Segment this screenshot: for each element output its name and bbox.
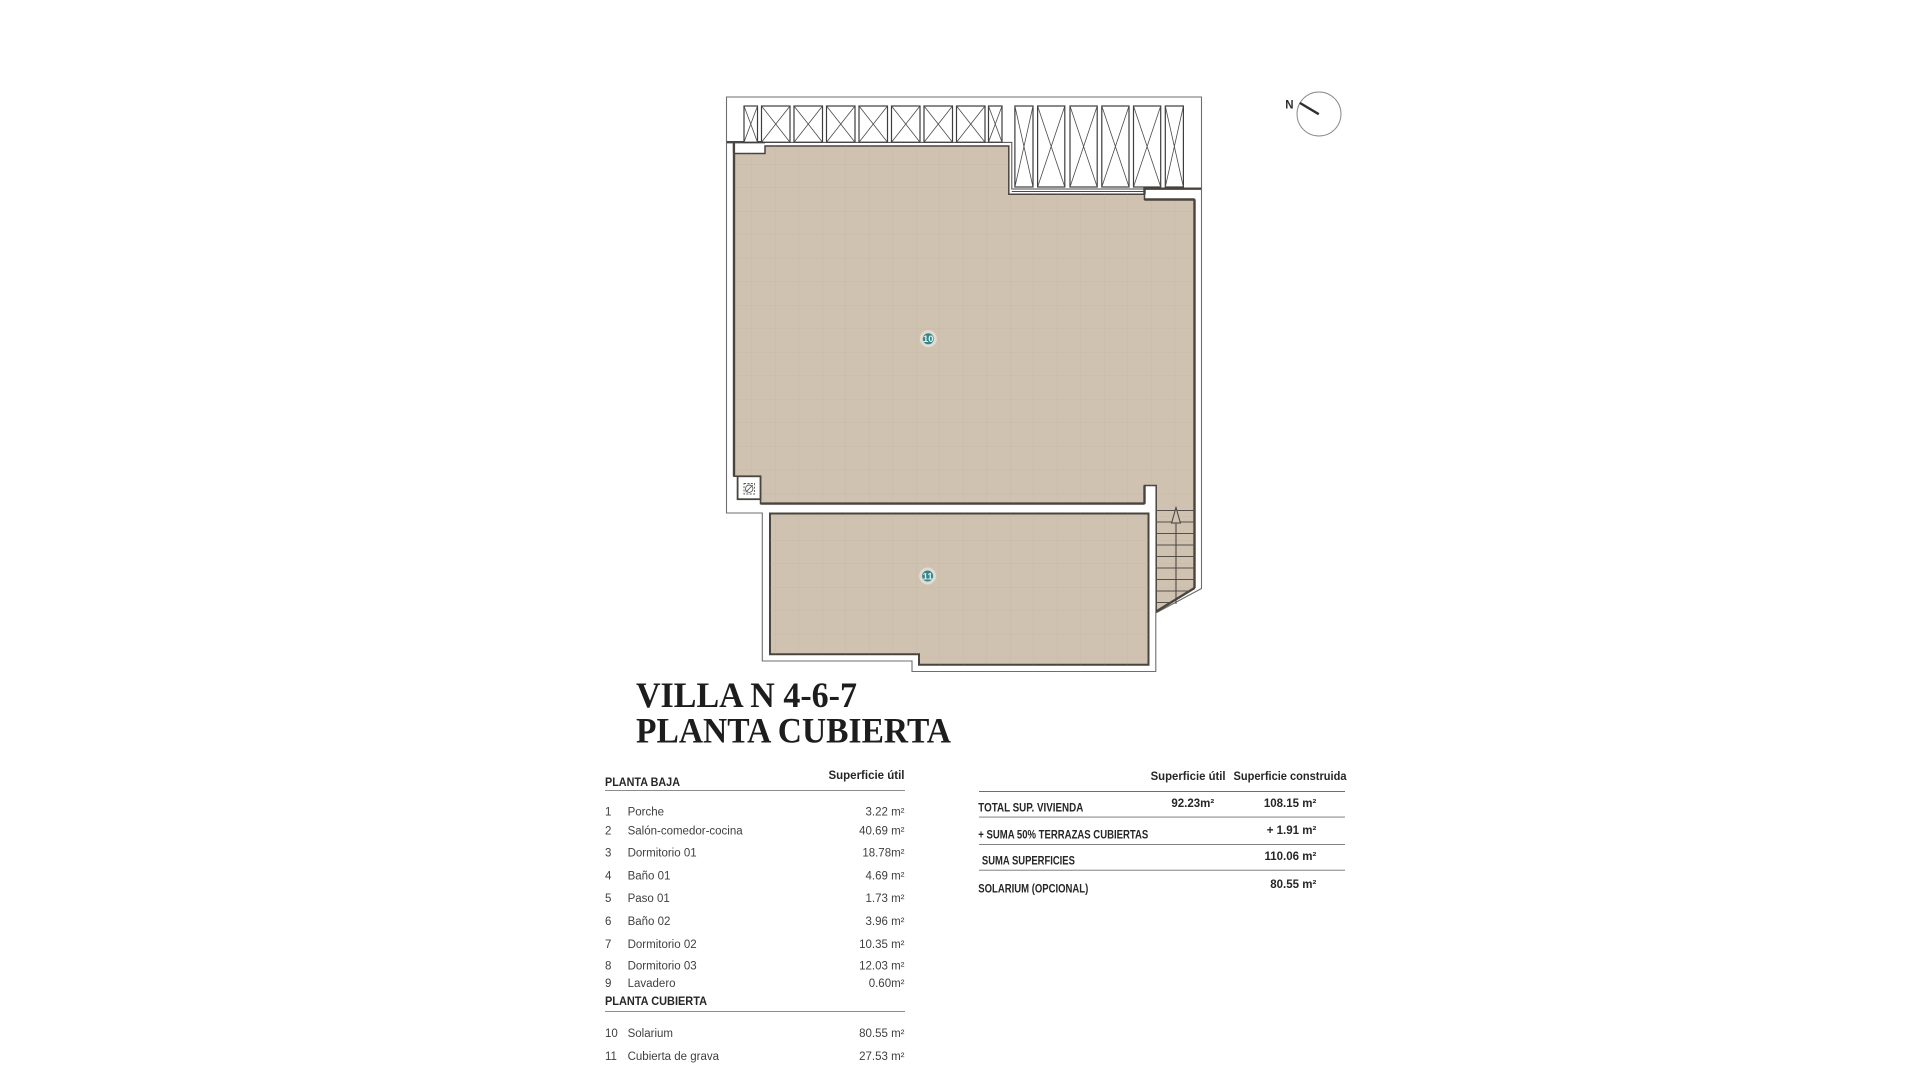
svg-text:3.96 m²: 3.96 m² xyxy=(866,916,905,928)
svg-text:6: 6 xyxy=(605,916,611,928)
svg-text:Porche: Porche xyxy=(628,807,664,819)
svg-text:108.15 m²: 108.15 m² xyxy=(1264,798,1317,810)
svg-text:+ SUMA 50% TERRAZAS CUBIERTAS: + SUMA 50% TERRAZAS CUBIERTAS xyxy=(978,829,1148,841)
svg-text:10: 10 xyxy=(923,334,934,345)
svg-text:4.69 m²: 4.69 m² xyxy=(866,870,905,882)
svg-text:N: N xyxy=(1285,100,1293,112)
svg-text:Superficie construida: Superficie construida xyxy=(1234,771,1348,783)
svg-text:80.55 m²: 80.55 m² xyxy=(859,1028,905,1040)
svg-text:1: 1 xyxy=(605,807,611,819)
svg-text:Solarium: Solarium xyxy=(628,1028,673,1040)
svg-text:0.60m²: 0.60m² xyxy=(869,978,905,990)
svg-text:Superficie útil: Superficie útil xyxy=(828,770,904,782)
svg-text:7: 7 xyxy=(605,939,611,951)
svg-text:Lavadero: Lavadero xyxy=(628,978,676,990)
svg-text:3.22 m²: 3.22 m² xyxy=(866,807,905,819)
svg-text:1.73 m²: 1.73 m² xyxy=(866,893,905,905)
svg-text:Salón-comedor-cocina: Salón-comedor-cocina xyxy=(628,825,744,837)
svg-text:11: 11 xyxy=(605,1051,617,1063)
svg-text:Baño 01: Baño 01 xyxy=(628,870,671,882)
svg-text:SUMA SUPERFICIES: SUMA SUPERFICIES xyxy=(982,855,1075,867)
svg-text:Baño 02: Baño 02 xyxy=(628,916,671,928)
svg-text:PLANTA CUBIERTA: PLANTA CUBIERTA xyxy=(605,996,707,1008)
svg-text:12.03 m²: 12.03 m² xyxy=(859,960,905,972)
svg-text:TOTAL SUP. VIVIENDA: TOTAL SUP. VIVIENDA xyxy=(978,802,1083,814)
svg-text:9: 9 xyxy=(605,978,611,990)
svg-text:5: 5 xyxy=(605,893,611,905)
svg-text:PLANTA CUBIERTA: PLANTA CUBIERTA xyxy=(636,710,951,750)
svg-text:10.35 m²: 10.35 m² xyxy=(859,939,905,951)
svg-text:Paso 01: Paso 01 xyxy=(628,893,670,905)
svg-text:4: 4 xyxy=(605,870,612,882)
svg-text:Dormitorio 02: Dormitorio 02 xyxy=(628,939,697,951)
svg-text:110.06 m²: 110.06 m² xyxy=(1265,851,1317,863)
svg-text:PLANTA BAJA: PLANTA BAJA xyxy=(605,777,680,789)
svg-text:Dormitorio 01: Dormitorio 01 xyxy=(628,848,697,860)
svg-text:Superficie útil: Superficie útil xyxy=(1151,771,1226,783)
svg-text:8: 8 xyxy=(605,960,611,972)
svg-text:3: 3 xyxy=(605,848,611,860)
svg-text:11: 11 xyxy=(923,571,934,582)
svg-text:2: 2 xyxy=(605,825,611,837)
svg-text:40.69 m²: 40.69 m² xyxy=(859,825,905,837)
svg-text:SOLARIUM (OPCIONAL): SOLARIUM (OPCIONAL) xyxy=(978,884,1088,896)
svg-text:VILLA N 4-6-7: VILLA N 4-6-7 xyxy=(636,675,857,715)
svg-text:27.53 m²: 27.53 m² xyxy=(859,1051,905,1063)
svg-text:Dormitorio 03: Dormitorio 03 xyxy=(628,960,697,972)
svg-text:Cubierta de grava: Cubierta de grava xyxy=(628,1051,720,1063)
svg-text:+ 1.91 m²: + 1.91 m² xyxy=(1267,825,1317,837)
svg-text:80.55 m²: 80.55 m² xyxy=(1270,879,1316,891)
svg-text:10: 10 xyxy=(605,1028,618,1040)
svg-text:18.78m²: 18.78m² xyxy=(862,848,904,860)
svg-text:92.23m²: 92.23m² xyxy=(1171,798,1214,810)
